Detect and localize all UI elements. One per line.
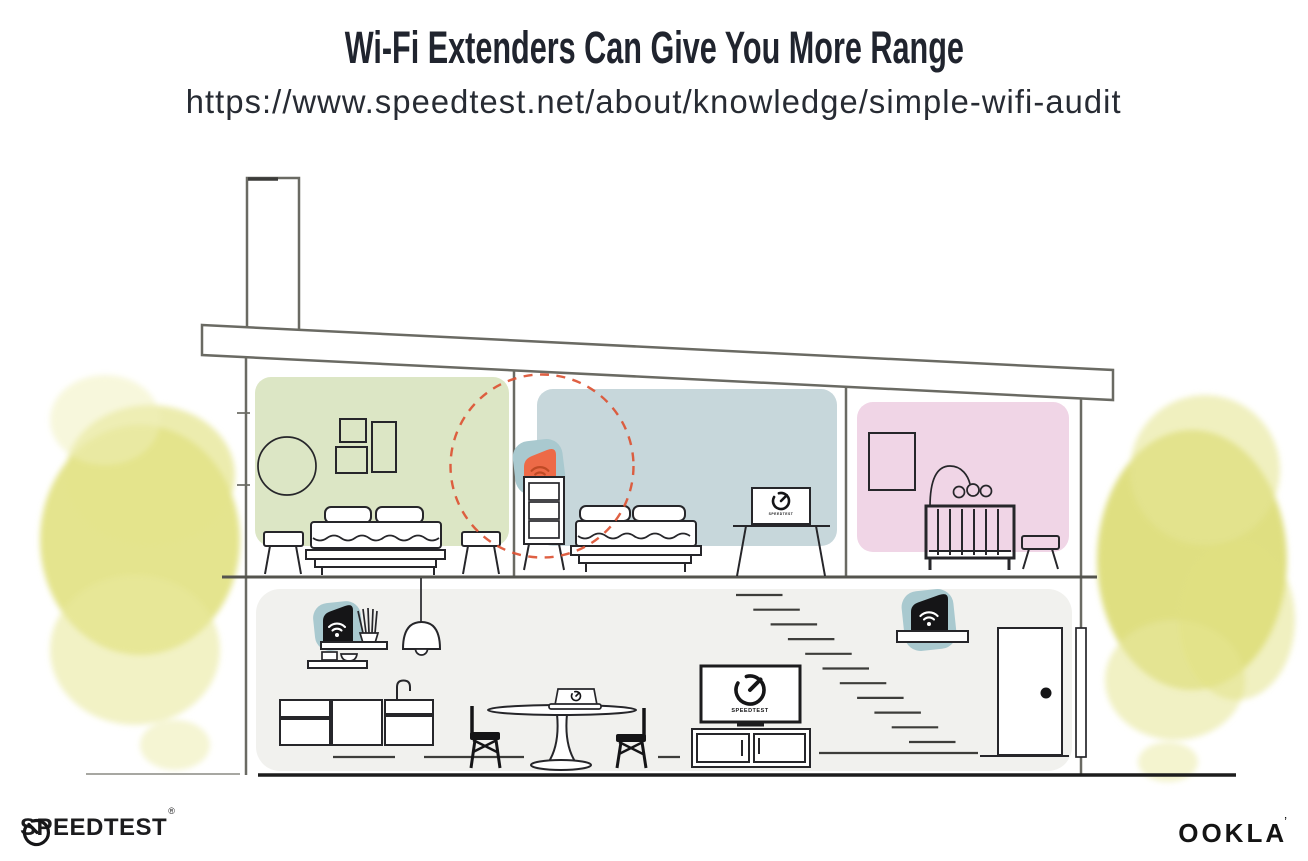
foliage-right (1097, 395, 1295, 782)
chimney (247, 178, 299, 338)
ookla-logo: OOKLA’ (1178, 818, 1290, 849)
house-illustration: SPEEDTEST (0, 0, 1308, 861)
tv-screen-label: SPEEDTEST (731, 708, 768, 714)
living-tv: SPEEDTEST (701, 666, 800, 725)
foliage-left (40, 375, 240, 770)
door-knob (1041, 688, 1052, 699)
dresser (511, 437, 567, 570)
laptop (549, 689, 601, 709)
tv-screen-label: SPEEDTEST (769, 512, 794, 516)
door-side-panel (1076, 628, 1086, 757)
nightstand-right (462, 532, 500, 574)
tv-console (692, 729, 810, 767)
speedtest-logo: SPEEDTEST® (20, 814, 174, 842)
nightstand-left (264, 532, 303, 574)
speedtest-gauge-icon (20, 814, 54, 850)
bed (571, 506, 701, 572)
